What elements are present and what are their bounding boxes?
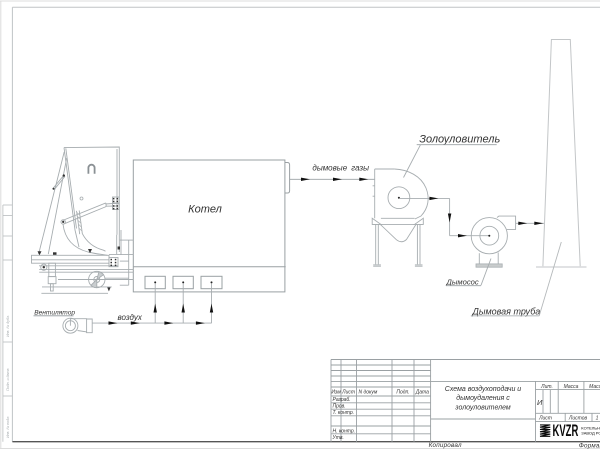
- svg-text:Схема воздухоподачи и: Схема воздухоподачи и: [445, 385, 522, 393]
- svg-text:Утв.: Утв.: [333, 435, 344, 441]
- svg-text:газы: газы: [351, 163, 369, 172]
- svg-text:Лист: Лист: [341, 390, 355, 396]
- svg-text:Дымовая труба: Дымовая труба: [472, 306, 541, 316]
- svg-text:Масса: Масса: [564, 384, 579, 390]
- svg-text:Инв. № дубл.: Инв. № дубл.: [6, 315, 10, 337]
- svg-text:Изм: Изм: [331, 390, 341, 396]
- svg-text:Дымосос: Дымосос: [446, 277, 479, 286]
- svg-text:дымовые: дымовые: [312, 163, 347, 172]
- svg-text:KVZR: KVZR: [553, 422, 579, 440]
- svg-text:Вентилятор: Вентилятор: [34, 309, 75, 316]
- svg-text:Листов: Листов: [568, 416, 588, 422]
- svg-text:Н. контр.: Н. контр.: [333, 428, 356, 434]
- svg-text:N докум: N докум: [359, 390, 378, 396]
- svg-text:И: И: [537, 398, 543, 407]
- svg-text:Золоуловитель: Золоуловитель: [419, 133, 500, 145]
- svg-text:дымоудаления с: дымоудаления с: [456, 394, 510, 402]
- svg-text:Пров.: Пров.: [333, 403, 346, 409]
- svg-text:Масш: Масш: [589, 384, 600, 390]
- svg-text:1: 1: [596, 416, 599, 422]
- svg-text:Дата: Дата: [415, 390, 429, 396]
- svg-text:Копировал: Копировал: [429, 442, 462, 449]
- svg-text:Подп. и дата: Подп. и дата: [6, 369, 10, 392]
- svg-text:Лист: Лист: [538, 416, 552, 422]
- svg-text:Инв. № подл.: Инв. № подл.: [6, 416, 10, 438]
- svg-text:ЗАВОД РОСС: ЗАВОД РОСС: [581, 430, 600, 435]
- svg-text:Разраб.: Разраб.: [333, 397, 351, 403]
- svg-text:Подп.: Подп.: [396, 390, 409, 396]
- svg-text:Т. контр.: Т. контр.: [333, 410, 355, 416]
- svg-text:золоуловителем: золоуловителем: [454, 404, 511, 411]
- svg-text:воздух: воздух: [118, 313, 143, 322]
- svg-text:Формат А3: Формат А3: [579, 443, 600, 450]
- svg-text:Лит.: Лит.: [540, 384, 553, 390]
- svg-text:Котел: Котел: [188, 204, 222, 216]
